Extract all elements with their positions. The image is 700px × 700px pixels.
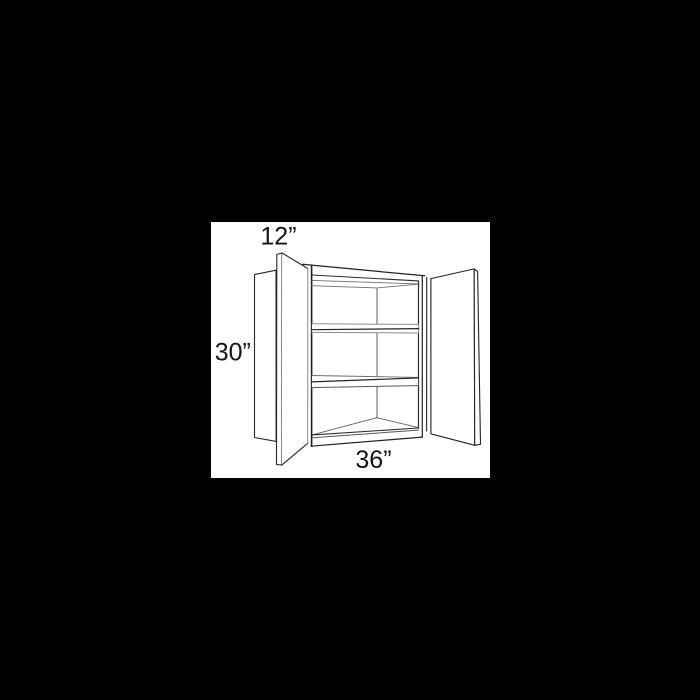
svg-text:36”: 36” <box>355 446 391 474</box>
svg-text:30”: 30” <box>215 339 251 367</box>
svg-text:12”: 12” <box>260 223 296 251</box>
